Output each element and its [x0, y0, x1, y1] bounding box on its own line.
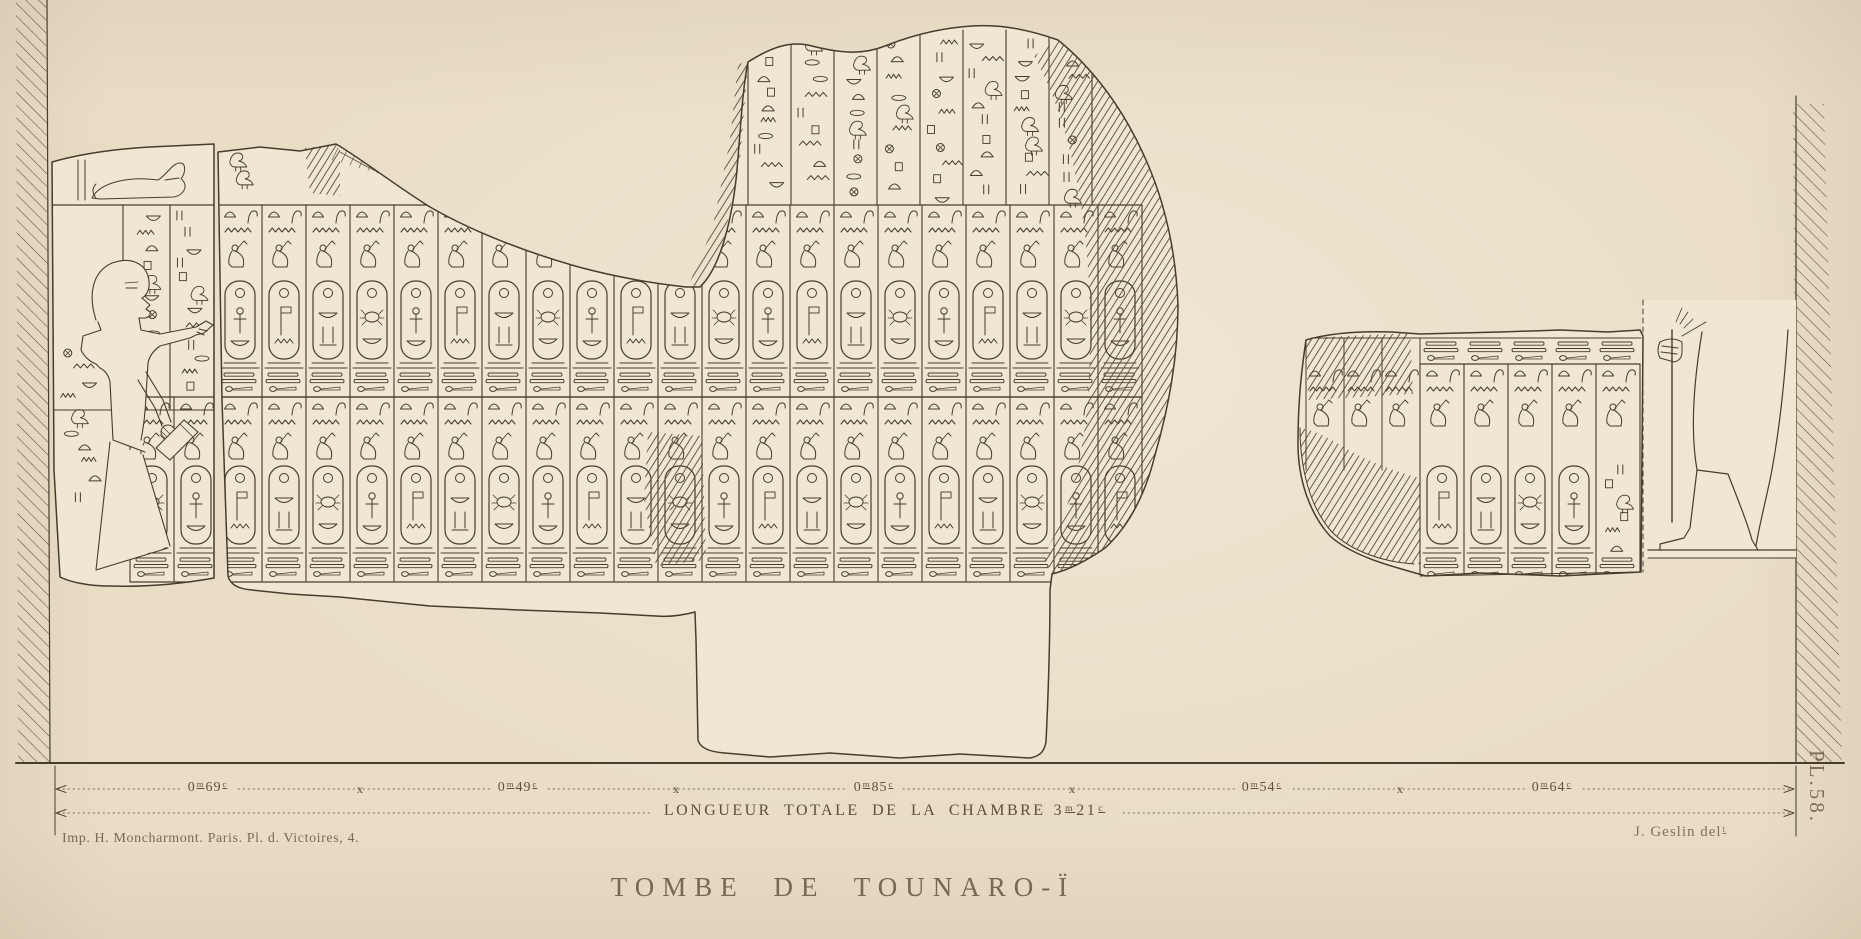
- tomb-wall-engraving: xxxx: [0, 0, 1861, 939]
- dimension-separator: x: [673, 782, 679, 796]
- dimension-separator: x: [1397, 782, 1403, 796]
- total-length-caption: LONGUEUR TOTALE DE LA CHAMBRE3m21c: [650, 802, 1120, 820]
- dimension-separator: x: [1069, 782, 1075, 796]
- measurement-label-5: 0m64c: [1525, 779, 1580, 796]
- dimension-lines: xxxx: [16, 763, 1844, 836]
- total-length-text: LONGUEUR TOTALE DE LA CHAMBRE: [664, 802, 1046, 819]
- measurement-label-4: 0m54c: [1235, 779, 1290, 796]
- artist-signature: J. Geslin delt: [1634, 824, 1727, 841]
- printer-imprint: Imp. H. Moncharmont. Paris. Pl. d. Victo…: [62, 831, 359, 847]
- fragment-fills: [52, 26, 1796, 758]
- measurement-label-1: 0m69c: [181, 779, 236, 796]
- measurement-label-2: 0m49c: [491, 779, 546, 796]
- plate-number: PL.58.: [1804, 750, 1829, 824]
- dimension-separator: x: [357, 782, 363, 796]
- measurement-label-3: 0m85c: [847, 779, 902, 796]
- lithograph-plate-page: xxxx 0m69c 0m49c 0m85c 0m54c 0m64c LONGU…: [0, 0, 1861, 939]
- plate-title: TOMBE DE TOUNARO-Ï: [611, 872, 1076, 903]
